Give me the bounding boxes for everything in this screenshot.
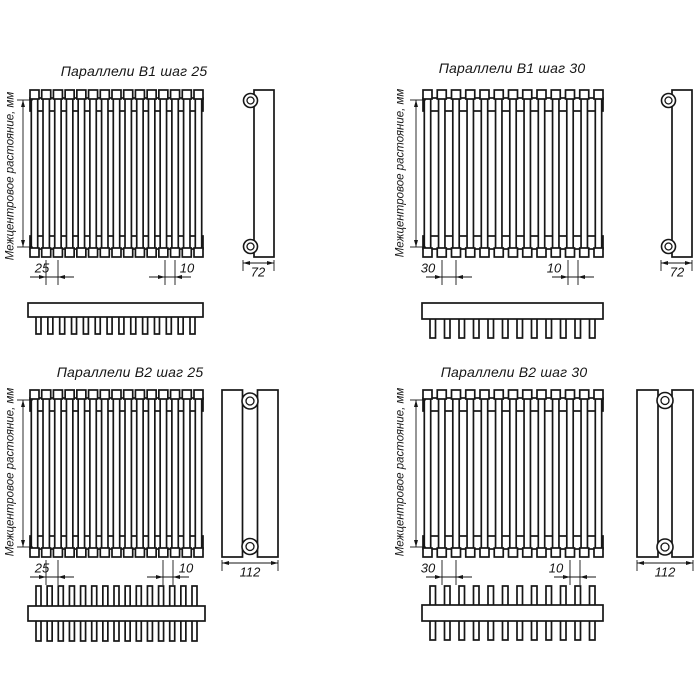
side-view [222, 390, 278, 557]
step-dimension-value: 25 [35, 562, 49, 575]
step-dimension-value: 30 [421, 262, 435, 275]
side-view [637, 390, 693, 557]
quadrant-drawing-0 [17, 90, 274, 334]
quadrant-drawing-3 [410, 390, 693, 640]
vertical-distance-label: Межцентровое растояние, мм [5, 388, 17, 557]
step-dimension-value: 30 [421, 562, 435, 575]
front-view [30, 390, 203, 557]
depth-dimension-value: 112 [655, 566, 676, 579]
depth-dimension-value: 72 [251, 266, 265, 279]
technical-drawing-canvas [0, 0, 700, 700]
vertical-distance-label: Межцентровое растояние, мм [395, 388, 407, 557]
side-view [662, 90, 693, 257]
top-view [28, 303, 203, 334]
top-view [28, 586, 205, 641]
top-view [422, 586, 603, 640]
side-view [244, 90, 275, 257]
tube-width-dimension-value: 10 [549, 562, 563, 575]
tube-width-dimension-value: 10 [180, 262, 194, 275]
quadrant-drawing-1 [410, 90, 692, 338]
step-dimension-value: 25 [35, 262, 49, 275]
drawing-title-b1-step30: Параллели В1 шаг 30 [439, 61, 586, 75]
radiator-drawing-sheet: Параллели В1 шаг 25 Межцентровое растоян… [0, 0, 700, 700]
depth-dimension-value: 112 [240, 566, 261, 579]
tube-width-dimension-value: 10 [547, 262, 561, 275]
top-view [422, 303, 603, 338]
front-view [423, 90, 603, 257]
front-view [30, 90, 203, 257]
vertical-distance-label: Межцентровое растояние, мм [5, 92, 17, 261]
drawing-title-b2-step30: Параллели В2 шаг 30 [441, 365, 588, 379]
vertical-distance-label: Межцентровое растояние, мм [395, 89, 407, 258]
front-view [423, 390, 603, 557]
drawing-title-b2-step25: Параллели В2 шаг 25 [57, 365, 204, 379]
tube-width-dimension-value: 10 [179, 562, 193, 575]
drawing-title-b1-step25: Параллели В1 шаг 25 [61, 64, 208, 78]
depth-dimension-value: 72 [670, 266, 684, 279]
quadrant-drawing-2 [17, 390, 278, 641]
